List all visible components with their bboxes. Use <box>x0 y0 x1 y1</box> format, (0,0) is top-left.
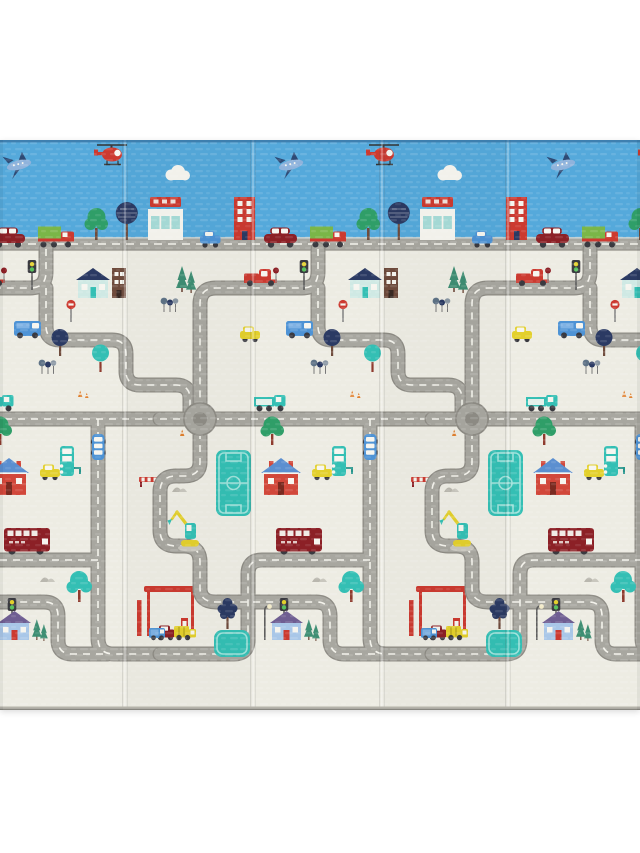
fold-crease <box>379 140 385 710</box>
playmat-artwork <box>0 140 640 710</box>
fold-crease <box>505 140 511 710</box>
mat-top-edge <box>0 140 640 142</box>
playmat-photo <box>0 140 640 710</box>
foam-texture <box>0 140 640 710</box>
panel-shade <box>382 140 508 710</box>
panel-shade <box>125 140 253 710</box>
fold-crease <box>122 140 128 710</box>
mat-bottom-shadow <box>0 709 640 710</box>
fold-crease <box>250 140 256 710</box>
mat-left-edge <box>0 140 3 710</box>
